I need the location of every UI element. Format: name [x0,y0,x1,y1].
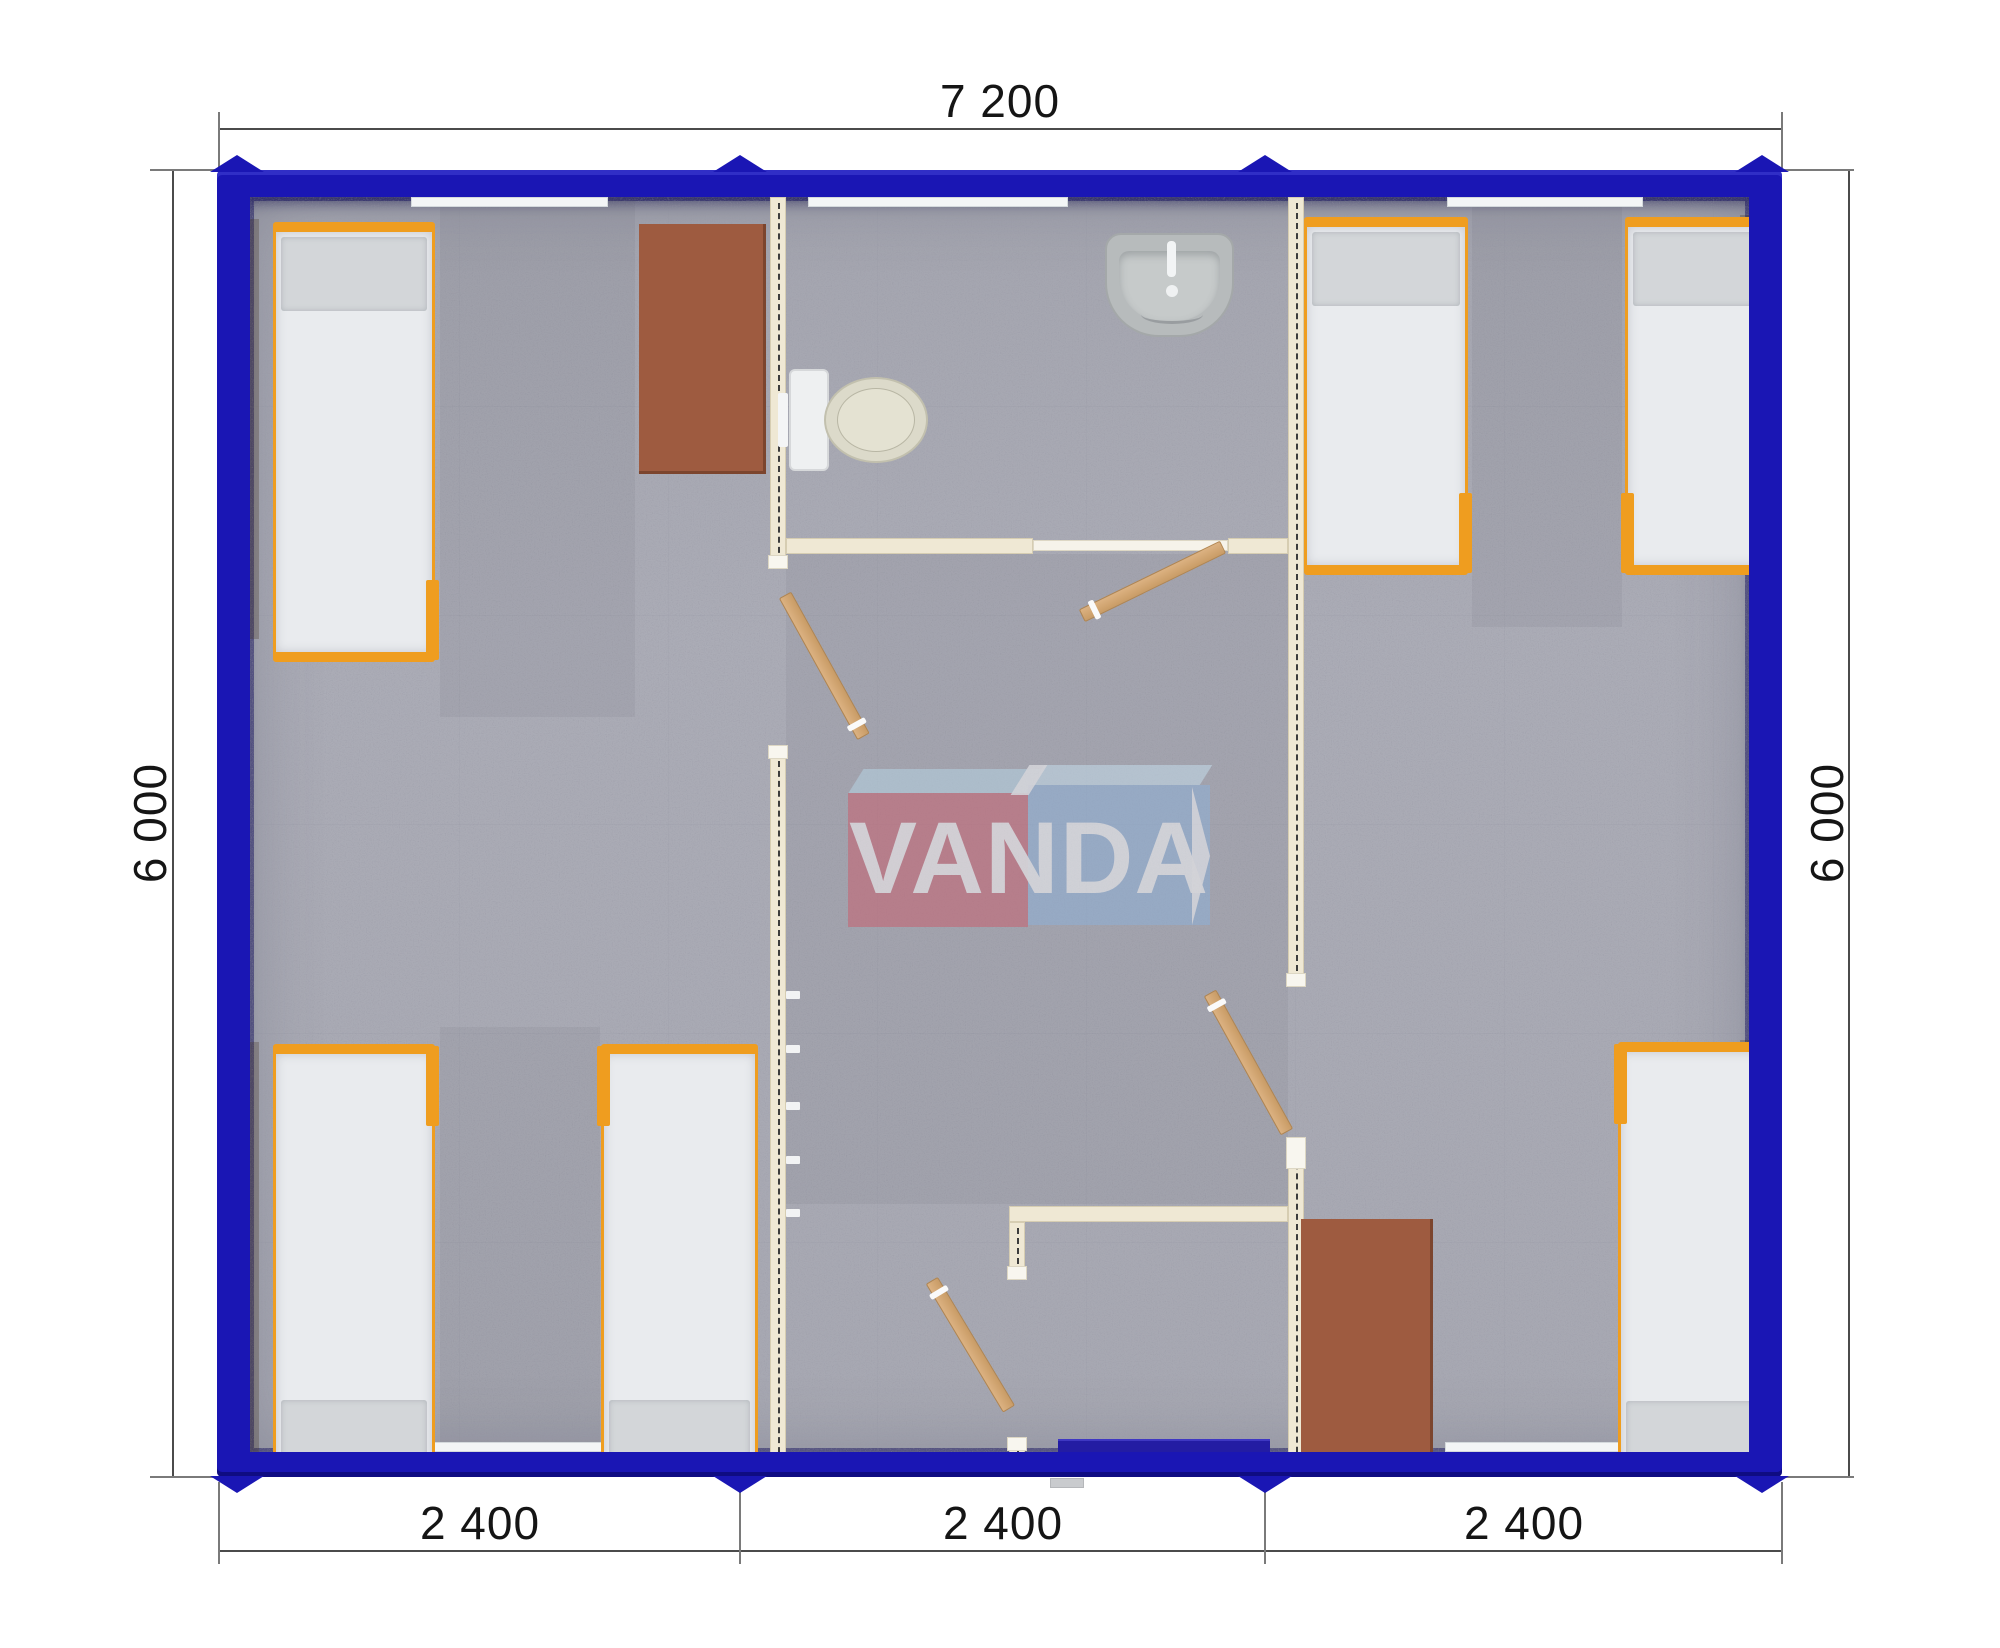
bathroom-wall-left-segment [786,538,1033,554]
pillow [1626,1401,1749,1452]
vestibule-wall-horizontal [1009,1206,1288,1222]
toilet-bowl [824,377,928,463]
logo-text: VANDA [848,783,1210,933]
faucet-dot-icon [1166,285,1178,297]
wall-joint-marker [1735,155,1789,172]
coat-hook [786,1102,800,1110]
toilet-seat [837,388,915,452]
extension-line [150,1476,218,1478]
sink-overflow-line [1141,305,1203,324]
window-bottom-right-module [1445,1442,1633,1452]
desk [1301,1219,1433,1452]
pillow [609,1400,750,1452]
bed [1625,217,1749,575]
bed-post [426,1046,439,1126]
sink [1105,233,1234,337]
logo-top-face-right [1032,765,1212,785]
floor-plan-canvas: 7 200 2 400 2 400 2 400 6 000 6 000 [0,0,2000,1648]
wall-joint-marker [210,155,264,172]
door-jamb [1286,973,1306,987]
pillow [281,237,427,311]
coat-hook [786,1156,800,1164]
bed [1304,217,1468,575]
toilet-tank [789,369,829,471]
bed-post [1614,1044,1627,1124]
bed [273,222,435,662]
pillow [1312,232,1460,306]
window-bottom-left-module [413,1442,606,1452]
extension-line [739,1492,741,1564]
bed-post [426,580,439,660]
wall-joint-marker [713,1476,767,1493]
dimension-label-depth-right: 6 000 [1800,753,1854,893]
carpet-floor: VANDA [250,197,1749,1452]
bathroom-wall-right-segment [1228,538,1288,554]
window-top-left-module [411,197,608,207]
door-jamb [1007,1437,1027,1451]
wall-gap-shadow [250,219,259,639]
faucet-icon [1167,241,1176,277]
dimension-label-module-1: 2 400 [360,1496,600,1550]
bed-post [1459,493,1472,573]
top-dimension-line [219,128,1783,130]
dimension-label-width-total: 7 200 [880,74,1120,128]
wall-joint-marker [713,155,767,172]
extension-line [1781,1482,1783,1564]
window-top-right-module [1447,197,1643,207]
toilet-mount [778,393,788,447]
coat-hook [786,1209,800,1217]
wall-joint-marker [210,1476,264,1493]
bed [273,1044,435,1452]
pillow [1633,232,1749,306]
dimension-label-depth-left: 6 000 [123,753,177,893]
partition-wall-left-upper [770,197,786,569]
entrance-step [1050,1478,1084,1488]
wall-joint-marker [1238,1476,1292,1493]
vanda-watermark: VANDA [848,765,1210,933]
window-top-bathroom [808,197,1068,207]
wall-gap-shadow [250,1042,259,1452]
door-jamb [1286,1137,1306,1169]
dimension-label-module-2: 2 400 [883,1496,1123,1550]
door-jamb [1007,1266,1027,1280]
partition-wall-left-lower [770,745,786,1452]
bed [1618,1042,1749,1452]
wall-joint-marker [1735,1476,1789,1493]
coat-hook [786,991,800,999]
bed [601,1044,758,1452]
bottom-dimension-line [219,1550,1783,1552]
extension-line [150,169,218,171]
partition-wall-right-upper [1288,197,1304,987]
extension-line [1264,1492,1266,1564]
floor-shading [440,1027,600,1452]
entrance-door [1058,1439,1270,1452]
building-outer-wall: VANDA [217,170,1782,1477]
floor-shading [440,197,635,717]
bed-post [597,1046,610,1126]
extension-line [1782,169,1854,171]
wall-joint-marker [1238,155,1292,172]
dimension-label-module-3: 2 400 [1404,1496,1644,1550]
desk [639,224,766,474]
coat-hook [786,1045,800,1053]
extension-line [1782,1476,1854,1478]
bed-post [1621,493,1634,573]
door-jamb [768,745,788,759]
door-jamb [768,555,788,569]
pillow [281,1400,427,1452]
floor-shading [1472,197,1622,627]
extension-line [218,1482,220,1564]
bathroom-door-lintel [1033,540,1228,551]
